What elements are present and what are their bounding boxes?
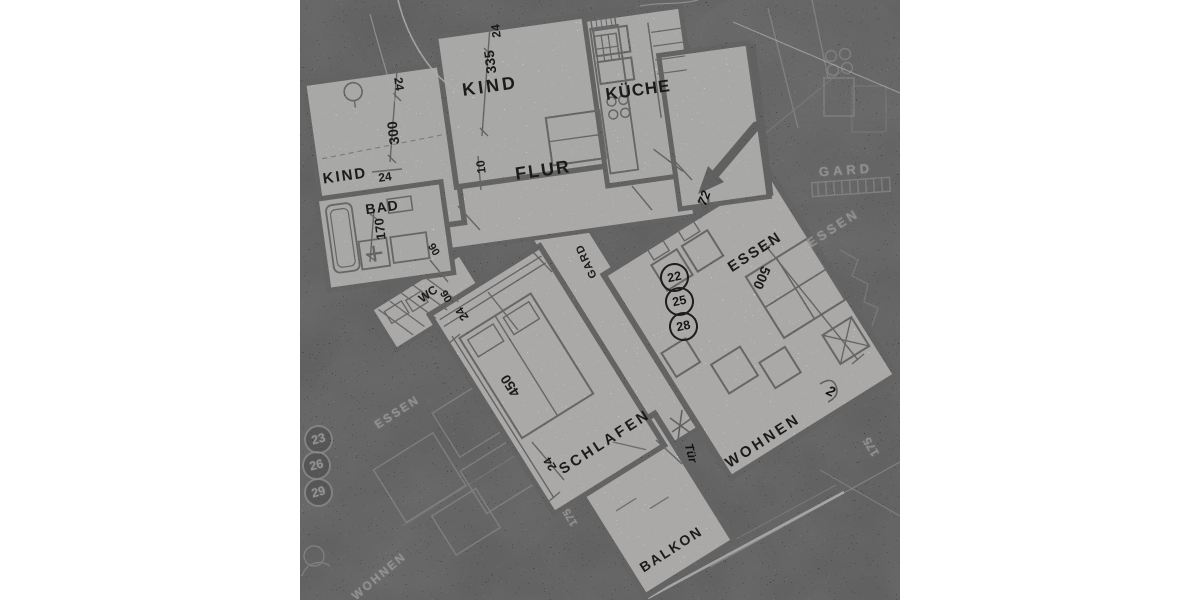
dim-label-300: 300 bbox=[385, 121, 402, 146]
floorplan-photo: KIND KIND KÜCHE FLUR BAD WC GARD ESSEN S… bbox=[300, 0, 900, 600]
dim-label-335: 335 bbox=[482, 50, 499, 75]
dim-label-170: 170 bbox=[372, 217, 388, 240]
ghost-label-gard: GARD bbox=[818, 162, 873, 179]
dim-label-24-kind-left-top: 24 bbox=[392, 77, 406, 92]
dim-label-10: 10 bbox=[474, 160, 488, 175]
grain-dark bbox=[300, 0, 900, 600]
floorplan-drawing bbox=[300, 0, 900, 600]
dim-label-24-kind-center-top: 24 bbox=[489, 24, 503, 39]
page: { "image": { "description": "High-contra… bbox=[0, 0, 1200, 600]
dim-label-24-kind-left-door: 24 bbox=[378, 170, 393, 184]
